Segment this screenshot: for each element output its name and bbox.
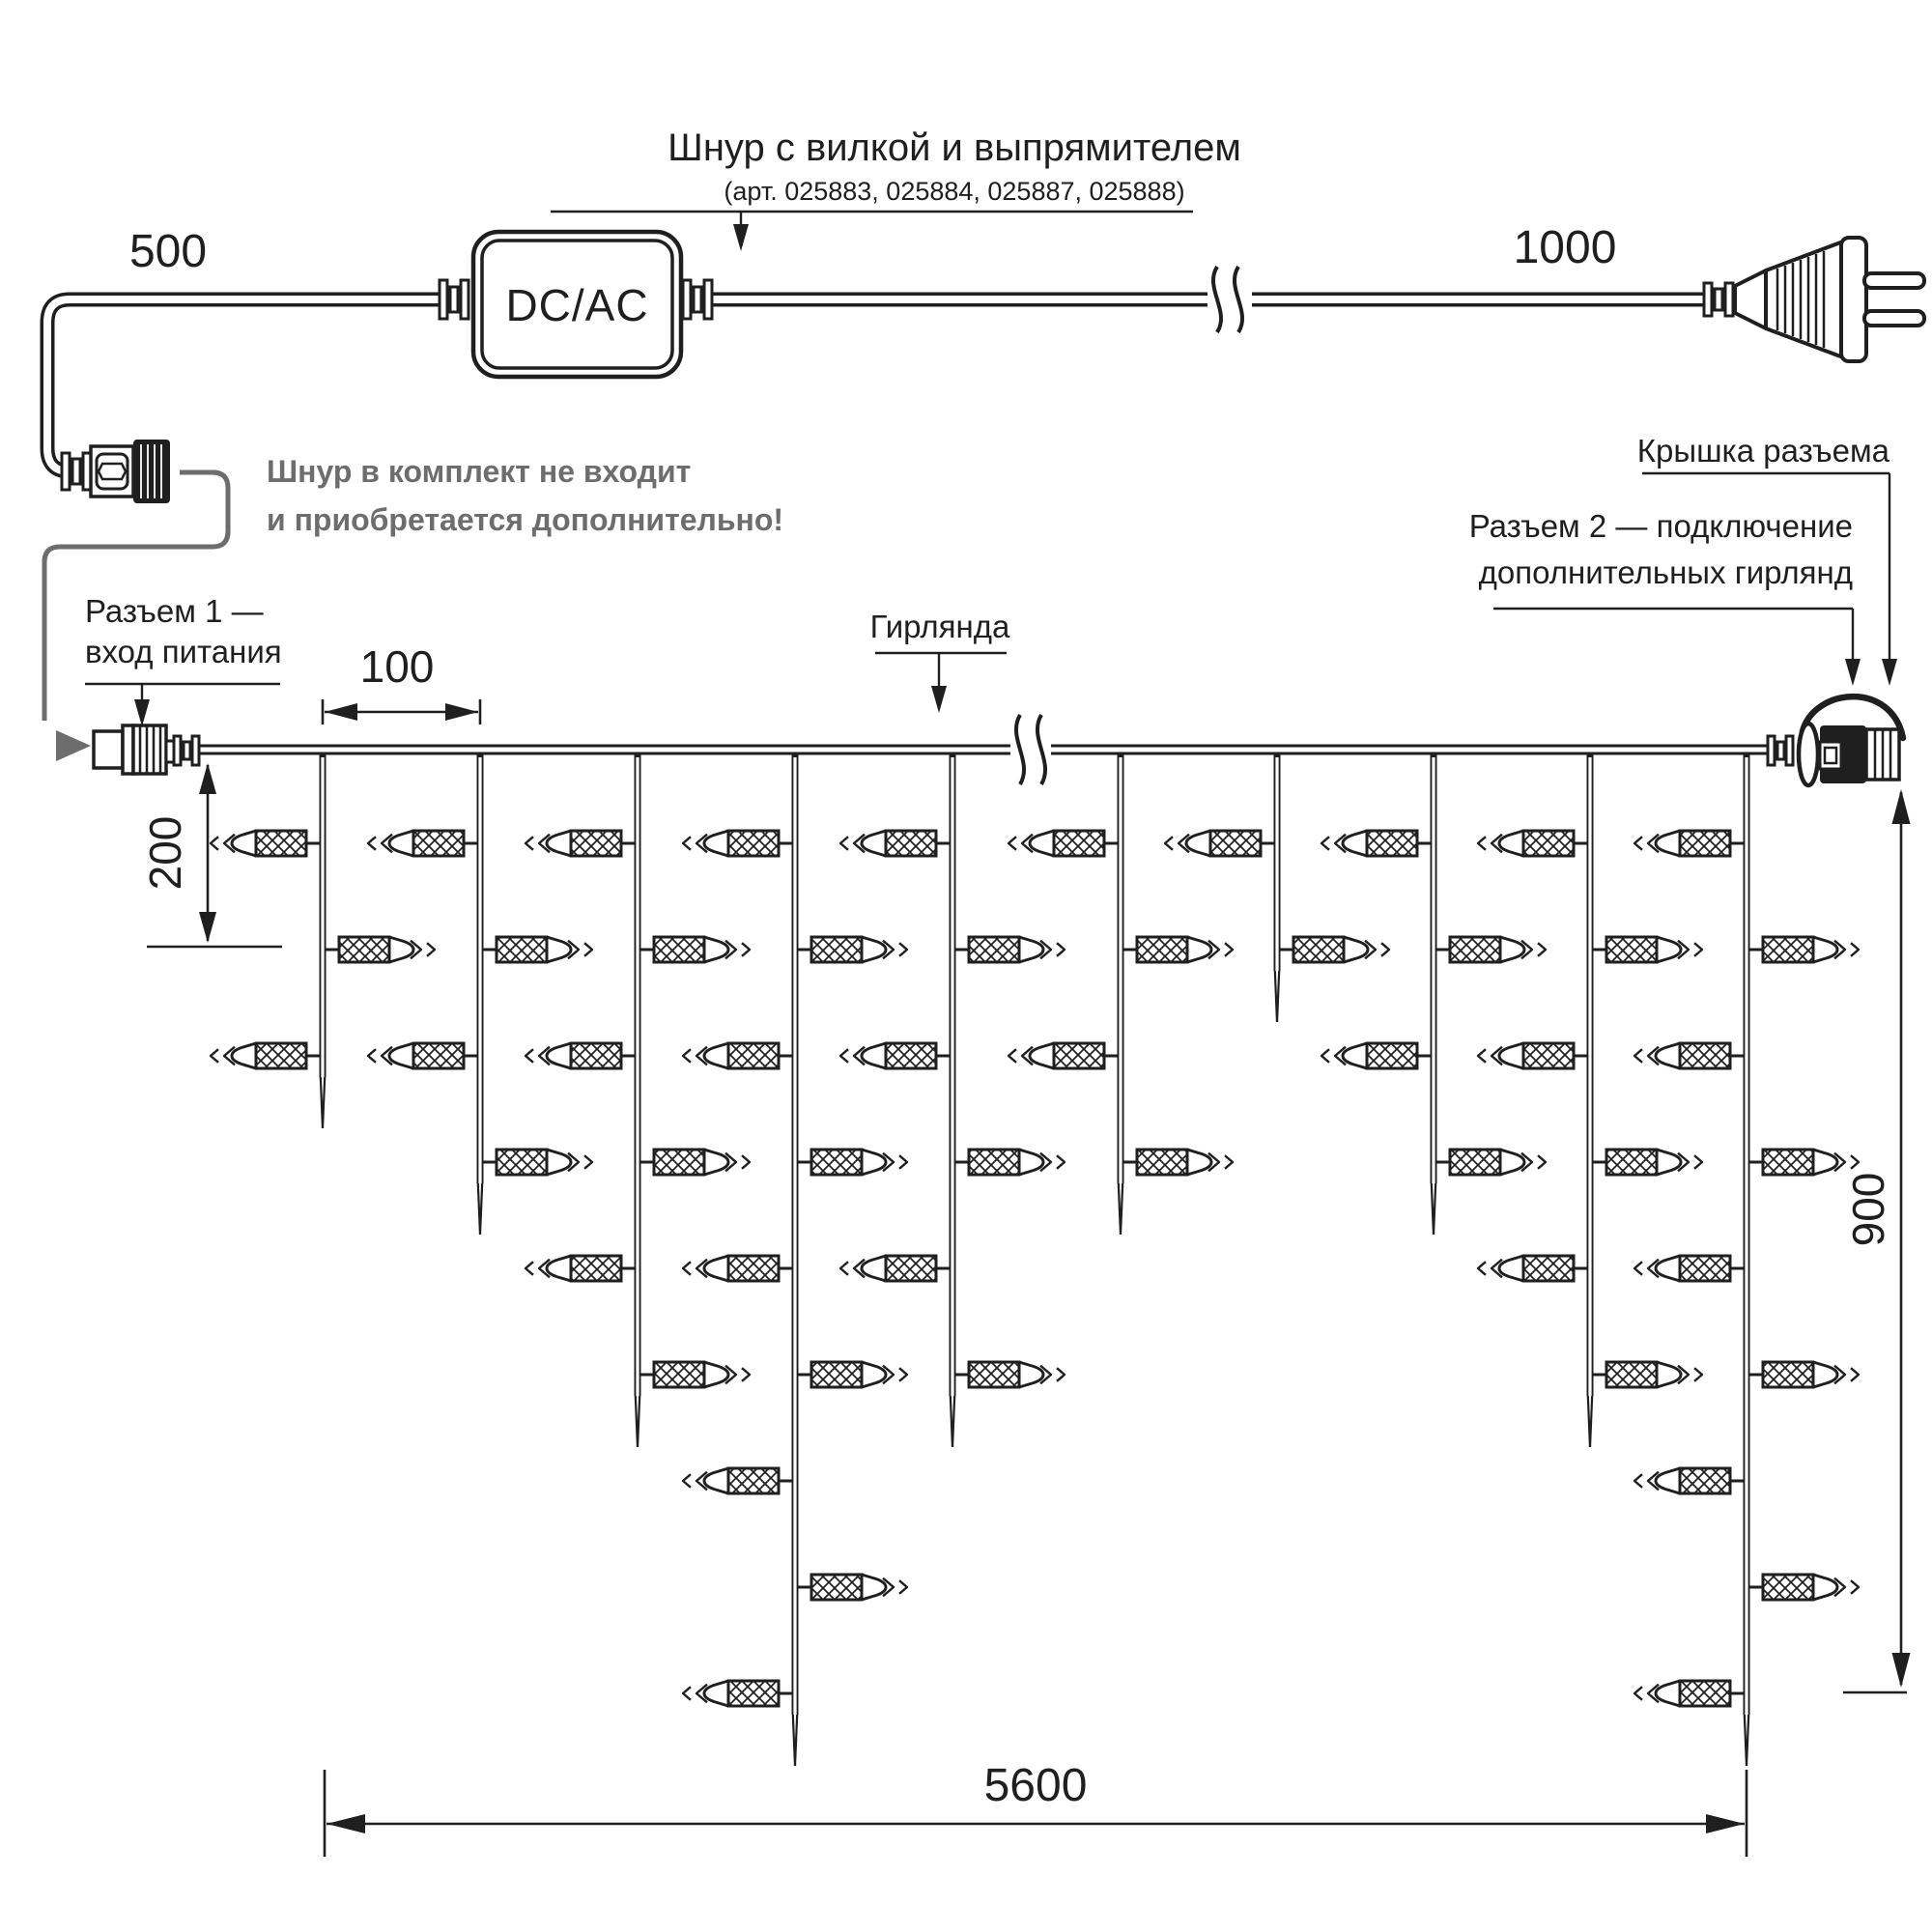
garland-schematic-canvas <box>0 0 1932 1932</box>
dim-200: 200 <box>142 790 188 916</box>
garland-label: Гирлянда <box>867 611 1012 644</box>
note-line1: Шнур в комплект не входит <box>267 456 691 489</box>
connector2-label-line2: дополнительных гирлянд <box>1468 556 1853 590</box>
dim-500: 500 <box>100 228 236 276</box>
title: Шнур с вилкой и выпрямителем <box>549 128 1360 168</box>
diagram-page: Шнур с вилкой и выпрямителем (арт. 02588… <box>0 0 1932 1932</box>
dc-ac-converter-label: DC/AC <box>473 282 681 328</box>
connector1-label-line2: вход питания <box>85 636 282 669</box>
connector2-label-line1: Разъем 2 — подключение <box>1468 510 1853 544</box>
dim-1000: 1000 <box>1478 224 1652 272</box>
cap-label: Крышка разъема <box>1600 435 1889 469</box>
note-line2: и приобретается дополнительно! <box>267 504 783 537</box>
dim-5600: 5600 <box>949 1762 1122 1810</box>
subtitle-art-numbers: (арт. 025883, 025884, 025887, 025888) <box>549 178 1360 205</box>
connector1-label-line1: Разъем 1 — <box>85 595 264 629</box>
dim-100: 100 <box>329 643 465 690</box>
dim-900: 900 <box>1845 1147 1891 1272</box>
